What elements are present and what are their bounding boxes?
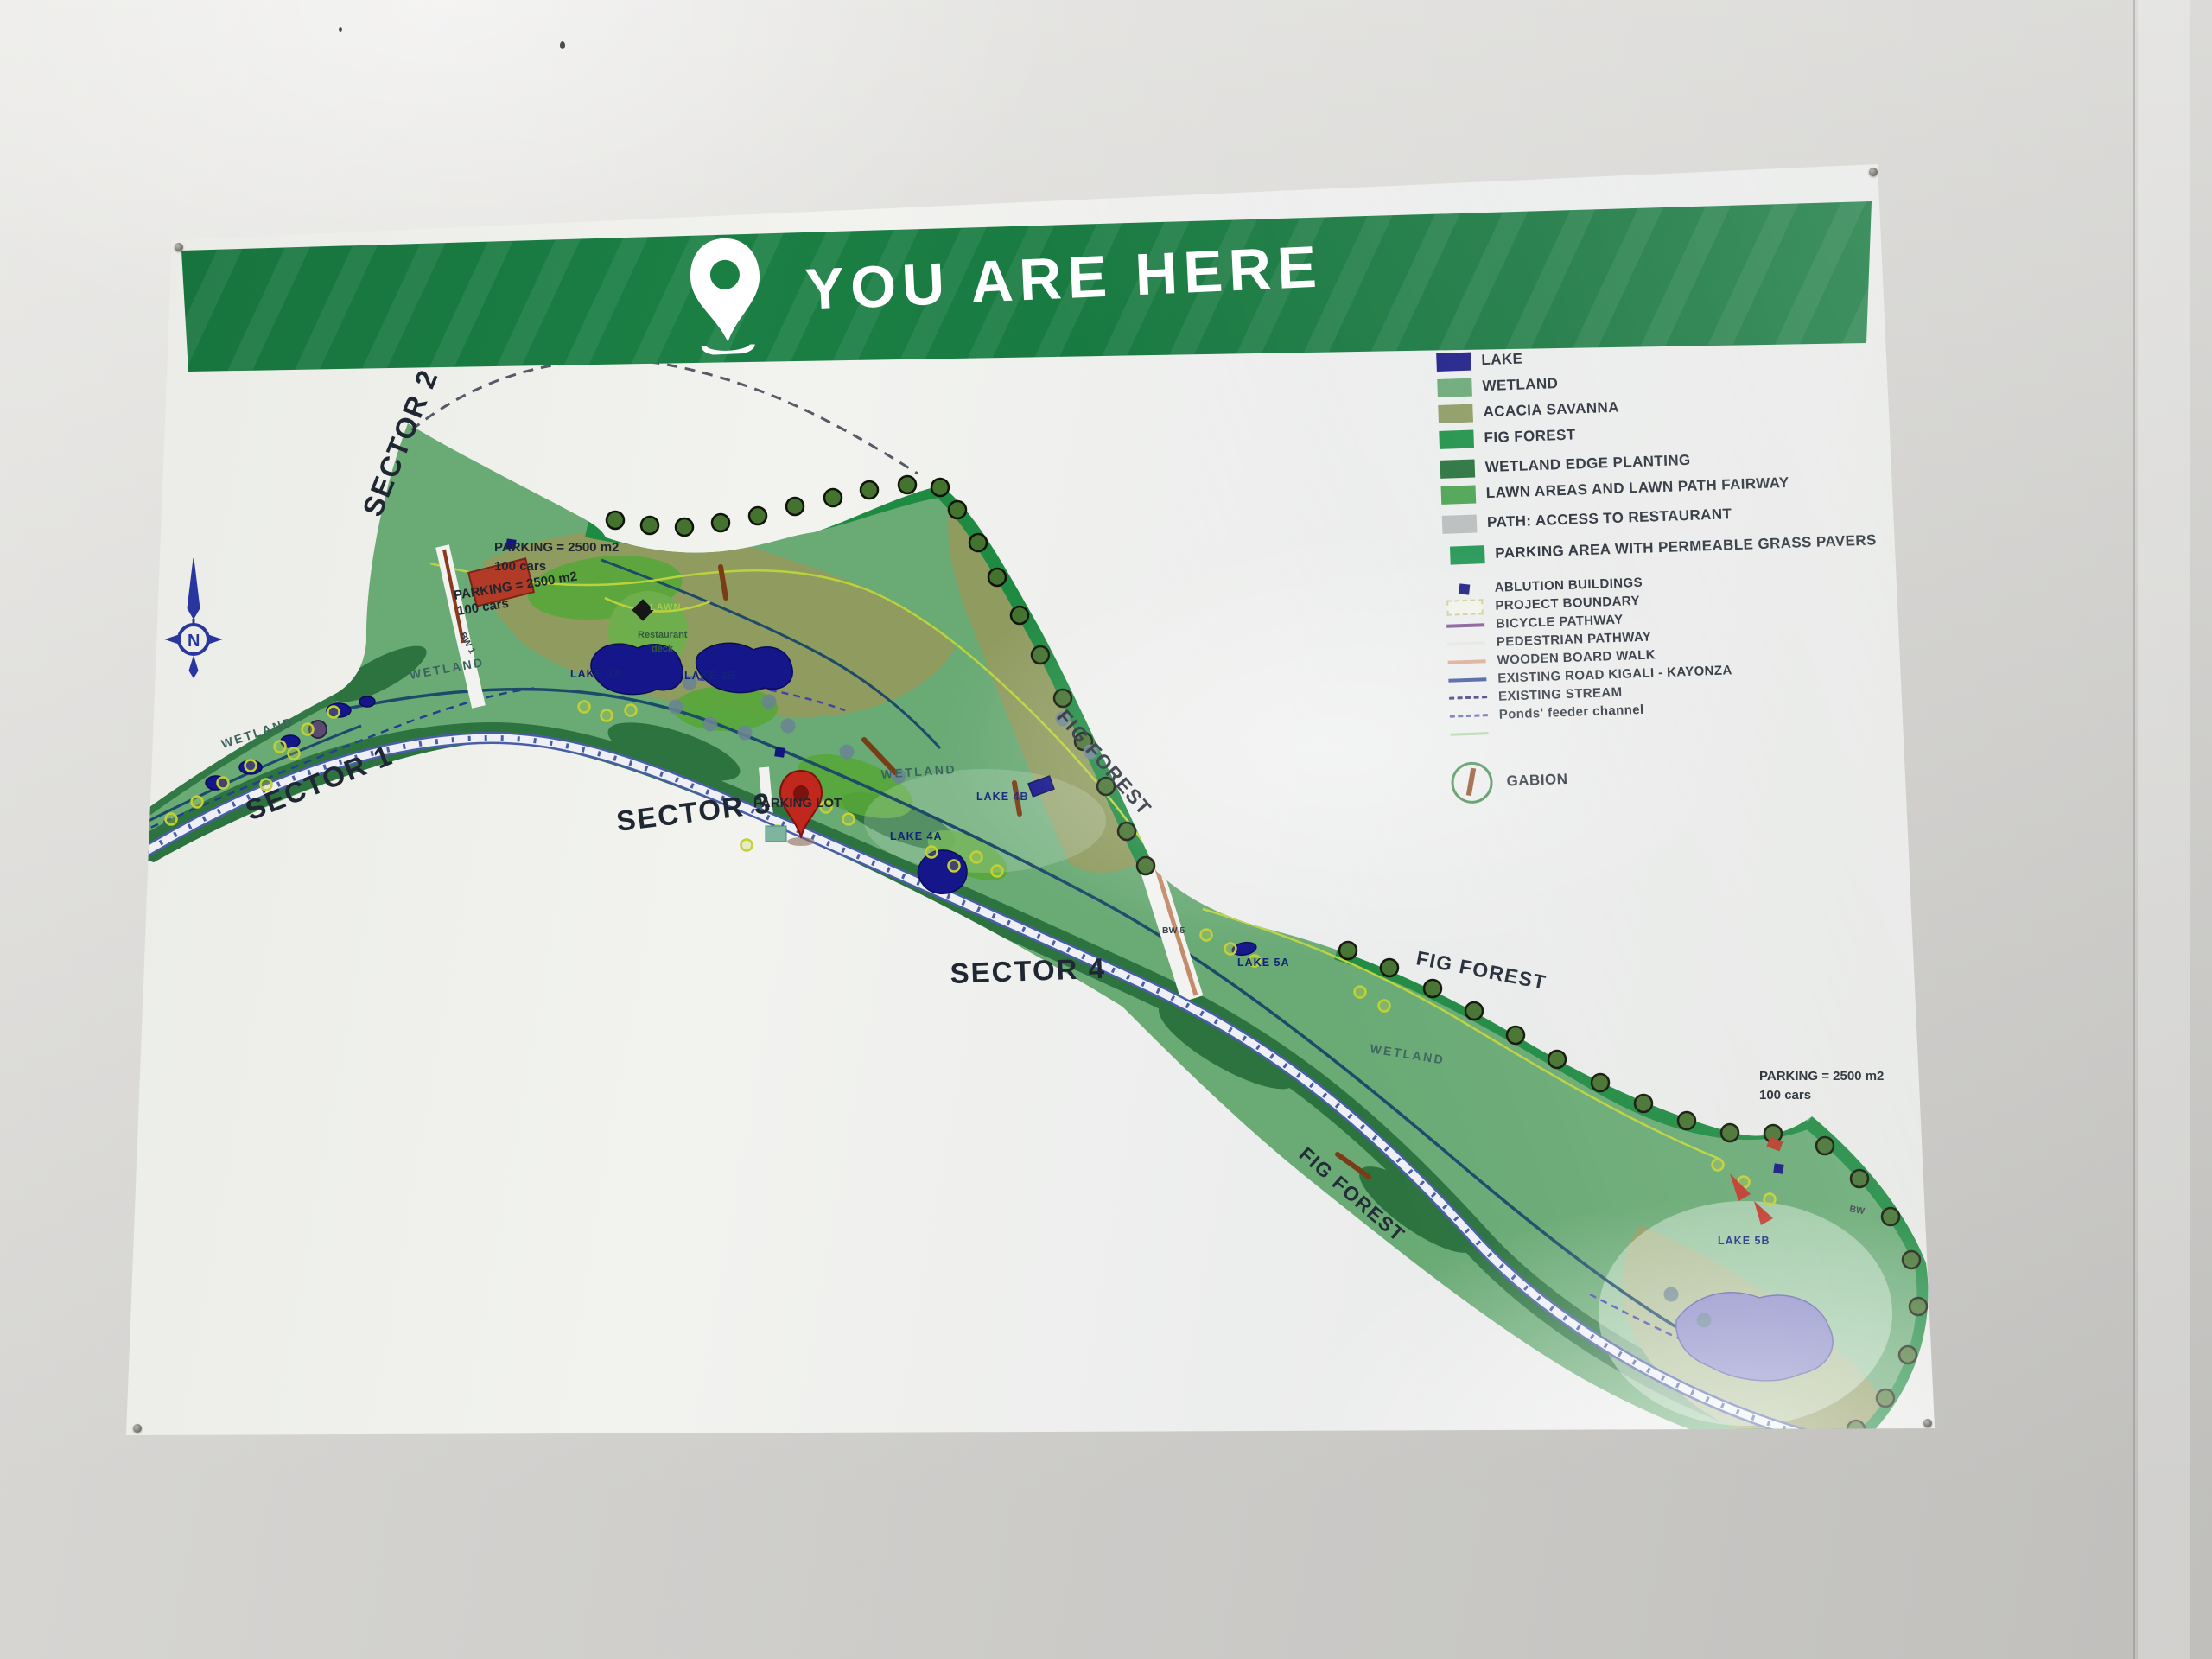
map-label-lake-3a: LAKE 3A	[570, 668, 622, 680]
map-label-sector4: SECTOR 4	[950, 952, 1107, 989]
map-label-lake-4a: LAKE 4A	[890, 830, 942, 842]
legend-swatch-acacia-savanna	[1438, 404, 1473, 423]
legend-label: PATH: ACCESS TO RESTAURANT	[1487, 505, 1732, 531]
legend-symbol-ablution	[1445, 583, 1484, 595]
legend-symbol-gabion	[1451, 761, 1494, 804]
map-label-parking-se: PARKING = 2500 m2	[1759, 1069, 1884, 1084]
legend-swatch-path-restaurant	[1442, 514, 1478, 533]
map-label-lake-5b: LAKE 5B	[1718, 1235, 1770, 1247]
legend-symbol-existing-road	[1447, 677, 1487, 683]
ablution-building-icon	[774, 747, 785, 757]
deck-icon	[766, 826, 786, 842]
wall-seam	[2133, 0, 2135, 1659]
map-label-restaurant: Restaurant	[638, 630, 688, 640]
legend-label: ACACIA SAVANNA	[1483, 399, 1619, 421]
screw	[175, 243, 183, 251]
map-label-parking-nw: PARKING = 2500 m2	[494, 540, 619, 555]
legend-label: EXISTING STREAM	[1498, 685, 1623, 704]
legend-symbol-project-boundary	[1445, 599, 1485, 616]
legend-swatch-wetland	[1437, 378, 1472, 397]
map-label-you-are-here-parking: PARKING LOT	[753, 796, 842, 810]
project-boundary-line	[411, 360, 918, 474]
legend-label: WETLAND	[1482, 375, 1558, 395]
map-label-restaurant-deck: deck	[652, 644, 674, 654]
legend-label-gabion: GABION	[1506, 771, 1568, 790]
location-pin-icon	[682, 232, 770, 356]
map-label-lake-5a: LAKE 5A	[1237, 957, 1289, 969]
screw	[133, 1424, 142, 1433]
map-label-bw5: BW 5	[1162, 925, 1185, 936]
map-label-parking-se-cars: 100 cars	[1759, 1088, 1811, 1103]
legend-swatch-lawn	[1441, 485, 1477, 504]
legend-label: LAKE	[1481, 351, 1523, 370]
legend-symbol-existing-stream	[1448, 696, 1488, 700]
legend-label: LAWN AREAS AND LAWN PATH FAIRWAY	[1486, 474, 1789, 502]
compass-north-letter: N	[188, 632, 200, 651]
map-label-parking-nw-cars: 100 cars	[494, 559, 546, 574]
legend-swatch-wetland-edge	[1440, 459, 1475, 478]
legend-symbol-wooden-board-walk	[1447, 659, 1487, 664]
you-are-here-title: YOU ARE HERE	[804, 233, 1324, 324]
legend-symbol-green-line	[1450, 732, 1490, 736]
map-legend: LAKE WETLAND ACACIA SAVANNA FIG FOREST W…	[1436, 331, 1961, 804]
photo-of-park-map-sign: { "header": { "title": "YOU ARE HERE" },…	[0, 0, 2212, 1659]
legend-swatch-parking-pavers	[1450, 545, 1485, 564]
legend-swatch-fig-forest	[1439, 429, 1474, 448]
ablution-building-icon	[1773, 1163, 1783, 1173]
compass-rose: N	[166, 558, 221, 677]
legend-symbol-pedestrian-pathway	[1446, 641, 1486, 646]
legend-label: WETLAND EDGE PLANTING	[1484, 452, 1690, 476]
wall-speck	[560, 41, 565, 49]
legend-symbol-ponds-feeder	[1449, 714, 1489, 718]
screw	[1923, 1419, 1932, 1427]
map-label-lake-4b: LAKE 4B	[976, 791, 1028, 803]
map-sign-board: N SECTOR 1 SECTOR 2 SECTOR 3 SECTOR 4 FI…	[0, 0, 2212, 1659]
map-label-sector3: SECTOR 3	[614, 786, 773, 837]
legend-swatch-lake	[1436, 352, 1471, 371]
map-label-lawn: LAWN	[650, 602, 681, 613]
wall-speck	[339, 27, 342, 32]
legend-label: FIG FOREST	[1484, 426, 1576, 447]
legend-symbol-bicycle-pathway	[1446, 623, 1485, 628]
map-label-bw2: BW 2	[123, 803, 145, 813]
screw	[1869, 168, 1878, 176]
wall-highlight	[2138, 0, 2190, 1659]
glare-patch	[864, 769, 1106, 873]
map-label-lake-3b: LAKE 3B	[684, 670, 736, 682]
